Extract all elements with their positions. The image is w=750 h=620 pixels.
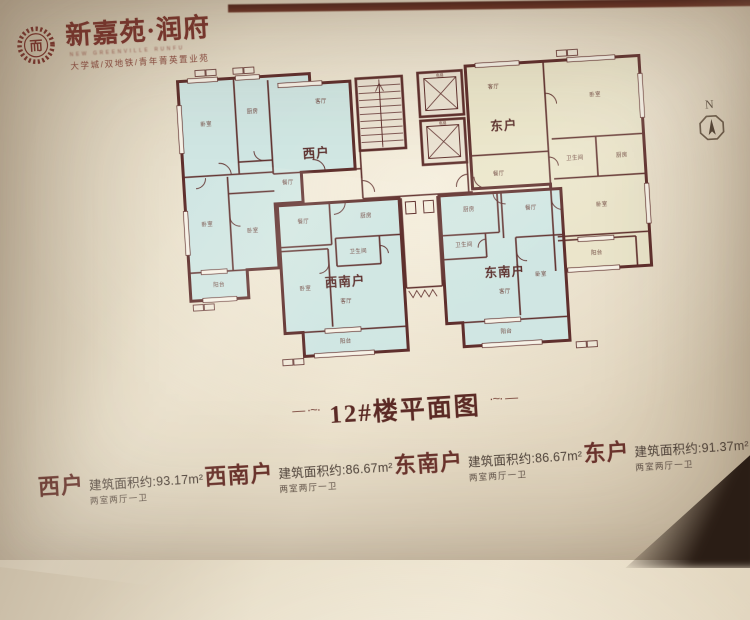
photo-of-floorplan-board: { "logo": { "name": "新嘉苑·润府", "english":… <box>0 0 750 560</box>
compass-icon <box>697 113 726 142</box>
title-ornament-right: ·~· — <box>489 390 518 407</box>
title-ornament-left: — ·~· <box>292 402 321 419</box>
north-compass: N <box>692 96 729 147</box>
brand-seal-icon: 而 <box>14 21 59 69</box>
unit-label-east: 东户 <box>490 117 518 134</box>
floor-plan: 电梯 电梯 西户 东户 西南户 东南户 <box>168 32 687 394</box>
legend-unit-info: 建筑面积约:86.67m² 两室两厅一卫 <box>278 453 394 495</box>
legend-item-west: 西户 建筑面积约:93.17m² 两室两厅一卫 <box>37 465 204 510</box>
legend-unit-name: 东南户 <box>393 449 463 478</box>
legend-unit-name: 东户 <box>583 439 630 467</box>
legend-unit-info: 建筑面积约:91.37m² 两室两厅一卫 <box>634 432 750 474</box>
entrance-canopy-icon <box>409 289 437 298</box>
unit-areas <box>178 53 656 363</box>
entrance-and-shaft <box>403 200 439 298</box>
legend-unit-info: 建筑面积约:93.17m² 两室两厅一卫 <box>88 465 204 507</box>
legend-item-southeast: 东南户 建筑面积约:86.67m² 两室两厅一卫 <box>393 442 583 488</box>
legend-item-east: 东户 建筑面积约:91.37m² 两室两厅一卫 <box>583 432 750 477</box>
legend-unit-name: 西户 <box>37 472 84 500</box>
floor-plan-drawing: 电梯 电梯 西户 东户 西南户 东南户 <box>168 32 687 394</box>
legend-item-southwest: 西南户 建筑面积约:86.67m² 两室两厅一卫 <box>204 453 394 499</box>
elevator-label: 电梯 <box>436 72 444 77</box>
elevator-label: 电梯 <box>439 120 447 125</box>
legend-unit-name: 西南户 <box>204 461 274 490</box>
unit-legend: 西户 建筑面积约:93.17m² 两室两厅一卫 西南户 建筑面积约:86.67m… <box>37 432 750 510</box>
north-label: N <box>692 96 727 113</box>
legend-unit-info: 建筑面积约:86.67m² 两室两厅一卫 <box>467 442 583 484</box>
seal-character: 而 <box>29 38 43 54</box>
north-arrow-icon <box>707 119 715 135</box>
unit-label-southeast: 东南户 <box>484 263 525 280</box>
display-board: 而 新嘉苑·润府 NEW GREENVILLE RUNFU 大学城/双地铁/青年… <box>0 0 750 582</box>
unit-label-southwest: 西南户 <box>324 273 365 290</box>
elevator-shafts: 电梯 电梯 <box>417 70 467 165</box>
plan-title: 12#楼平面图 <box>329 393 482 429</box>
stairwell <box>356 76 406 151</box>
unit-label-west: 西户 <box>302 145 330 162</box>
